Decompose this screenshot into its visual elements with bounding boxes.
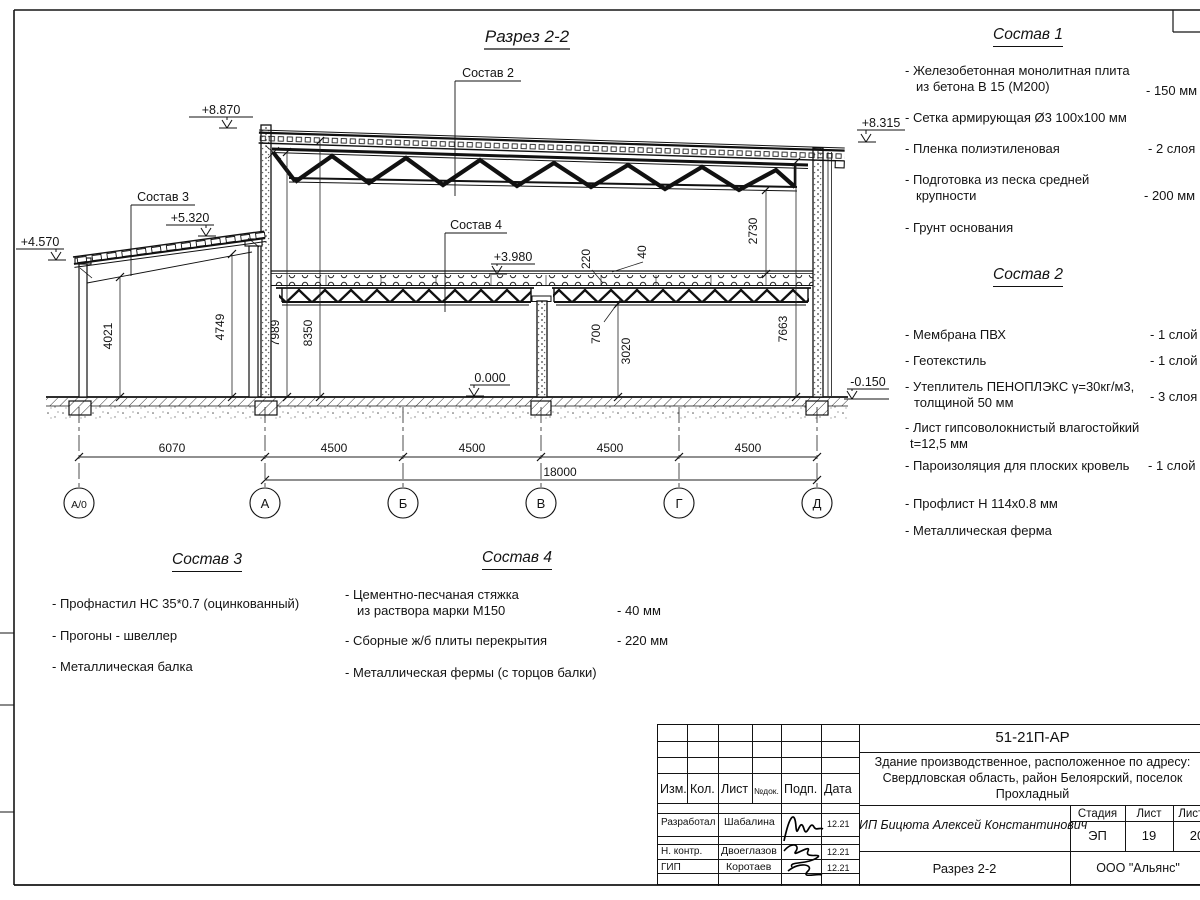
sostav4-title: Состав 4	[482, 549, 552, 570]
dim-text: 7989	[268, 319, 282, 346]
organization-name: ООО "Альянс"	[1070, 862, 1200, 876]
axis-label: А	[261, 496, 270, 511]
list-item: - Сборные ж/б плиты перекрытия	[345, 634, 547, 649]
list-item: - Утеплитель ПЕНОПЛЭКС γ=30кг/м3,	[905, 380, 1134, 395]
person-name: Коротаев	[726, 862, 771, 874]
leader-text: Состав 3	[137, 190, 189, 204]
role-label: Н. контр.	[661, 846, 702, 857]
dim-text: 700	[589, 324, 603, 344]
date-value: 12.21	[827, 848, 850, 858]
list-item: - Пленка полиэтиленовая	[905, 142, 1060, 157]
list-item: - Металлическая балка	[52, 660, 193, 675]
axis-label: Г	[675, 496, 682, 511]
list-item: - Цементно-песчаная стяжка	[345, 588, 519, 603]
stage-value: ЭП	[1070, 829, 1125, 843]
list-item-value: - 1 слой	[1150, 354, 1198, 369]
list-item: крупности	[916, 189, 976, 204]
dim-text: 4500	[597, 441, 624, 455]
sheet-value: 19	[1125, 829, 1173, 843]
dim-text: 6070	[159, 441, 186, 455]
col-header: Лист	[721, 783, 748, 797]
list-item: - Геотекстиль	[905, 354, 986, 369]
axis-label: В	[537, 496, 546, 511]
elevation-text: -0.150	[850, 375, 885, 389]
project-name-line: Свердловская область, район Белоярский, …	[859, 772, 1200, 786]
list-item: из бетона В 15 (М200)	[916, 80, 1050, 95]
list-item-value: - 40 мм	[617, 604, 661, 619]
elevation-text: 0.000	[474, 371, 505, 385]
axis-label: А/0	[71, 499, 87, 511]
list-item-value: - 1 слой	[1150, 328, 1198, 343]
list-item-value: - 3 слоя	[1150, 390, 1197, 405]
leader-text: Состав 4	[450, 218, 502, 232]
list-item: - Железобетонная монолитная плита	[905, 64, 1130, 79]
sostav2-title: Состав 2	[993, 266, 1063, 287]
vertical-dimensions	[120, 141, 796, 397]
person-name: Двоеглазов	[721, 846, 777, 858]
col-header: Подп.	[784, 783, 817, 797]
dim-text: 4500	[459, 441, 486, 455]
list-item-value: - 220 мм	[617, 634, 668, 649]
stage-label: Стадия	[1070, 808, 1125, 821]
list-item: - Металлическая ферма	[905, 524, 1052, 539]
list-item: - Грунт основания	[905, 221, 1013, 236]
list-item: - Профлист Н 114х0.8 мм	[905, 497, 1058, 512]
dim-text: 18000	[543, 465, 577, 479]
sostav3-title: Состав 3	[172, 551, 242, 572]
col-header: Дата	[824, 783, 852, 797]
dim-text: 4749	[213, 313, 227, 340]
axis-bubbles	[64, 488, 832, 518]
dim-text: 4500	[735, 441, 762, 455]
axis-label: Б	[399, 496, 408, 511]
sheet-label: Лист	[1125, 808, 1173, 821]
dim-text: 7663	[776, 315, 790, 342]
dim-text: 2730	[746, 217, 760, 244]
elevation-text: +8.315	[862, 116, 901, 130]
dim-text: 3020	[619, 337, 633, 364]
list-item: - Профнастил НС 35*0.7 (оцинкованный)	[52, 597, 299, 612]
title-block: Изм. Кол. Лист №док. Подп. Дата Разработ…	[657, 724, 1200, 885]
dim-text: 8350	[301, 319, 315, 346]
project-name-line: Прохладный	[859, 788, 1200, 802]
date-value: 12.21	[827, 864, 850, 874]
list-item-value: - 150 мм	[1146, 84, 1197, 99]
axis-label: Д	[813, 496, 822, 511]
elevation-text: +5.320	[171, 211, 210, 225]
sheets-value: 20	[1173, 829, 1200, 843]
dim-text: 220	[579, 249, 593, 269]
axis-labels: А/0 А Б В Г Д	[71, 496, 821, 511]
list-item-value: - 1 слой	[1148, 459, 1196, 474]
sostav1-title: Состав 1	[993, 26, 1063, 47]
company-name: ИП Бицюта Алексей Константинович	[859, 819, 1070, 833]
list-item: - Металлическая фермы (с торцов балки)	[345, 666, 597, 681]
list-item: толщиной 50 мм	[914, 396, 1014, 411]
list-item: - Сетка армирующая Ø3 100х100 мм	[905, 111, 1127, 126]
list-item-value: - 2 слоя	[1148, 142, 1195, 157]
list-item: t=12,5 мм	[910, 437, 968, 452]
project-name-line: Здание производственное, расположенное п…	[859, 756, 1200, 770]
date-value: 12.21	[827, 820, 850, 830]
annex-roof	[73, 231, 266, 267]
dim-text: 4021	[101, 322, 115, 349]
role-label: ГИП	[661, 862, 681, 873]
list-item: - Прогоны - швеллер	[52, 629, 177, 644]
person-name: Шабалина	[724, 817, 775, 829]
elevation-text: +8.870	[202, 103, 241, 117]
list-item-value: - 200 мм	[1144, 189, 1195, 204]
elevation-text: +4.570	[21, 235, 60, 249]
list-item: - Лист гипсоволокнистый влагостойкий	[905, 421, 1139, 436]
list-item: - Мембрана ПВХ	[905, 328, 1006, 343]
col-header: №док.	[754, 787, 779, 796]
document-number: 51-21П-АР	[859, 730, 1200, 747]
role-label: Разработал	[661, 817, 715, 828]
drawing-title: Разрез 2-2	[484, 27, 570, 49]
dim-text: 4500	[321, 441, 348, 455]
col-header: Изм.	[660, 783, 687, 797]
view-title: Разрез 2-2	[859, 862, 1070, 876]
sheets-label: Листов	[1173, 808, 1200, 821]
leader-text: Состав 2	[462, 66, 514, 80]
dim-text: 40	[635, 245, 649, 259]
dimension-texts-horizontal: 6070 4500 4500 4500 4500 18000	[159, 441, 762, 479]
drawing-title-text: Разрез 2-2	[485, 27, 570, 46]
col-header: Кол.	[690, 783, 715, 797]
signature	[778, 837, 826, 883]
elevation-text: +3.980	[494, 250, 533, 264]
ground-slab	[46, 397, 848, 420]
list-item: из раствора марки М150	[357, 604, 505, 619]
list-item: - Подготовка из песка средней	[905, 173, 1089, 188]
list-item: - Пароизоляция для плоских кровель	[905, 459, 1129, 474]
